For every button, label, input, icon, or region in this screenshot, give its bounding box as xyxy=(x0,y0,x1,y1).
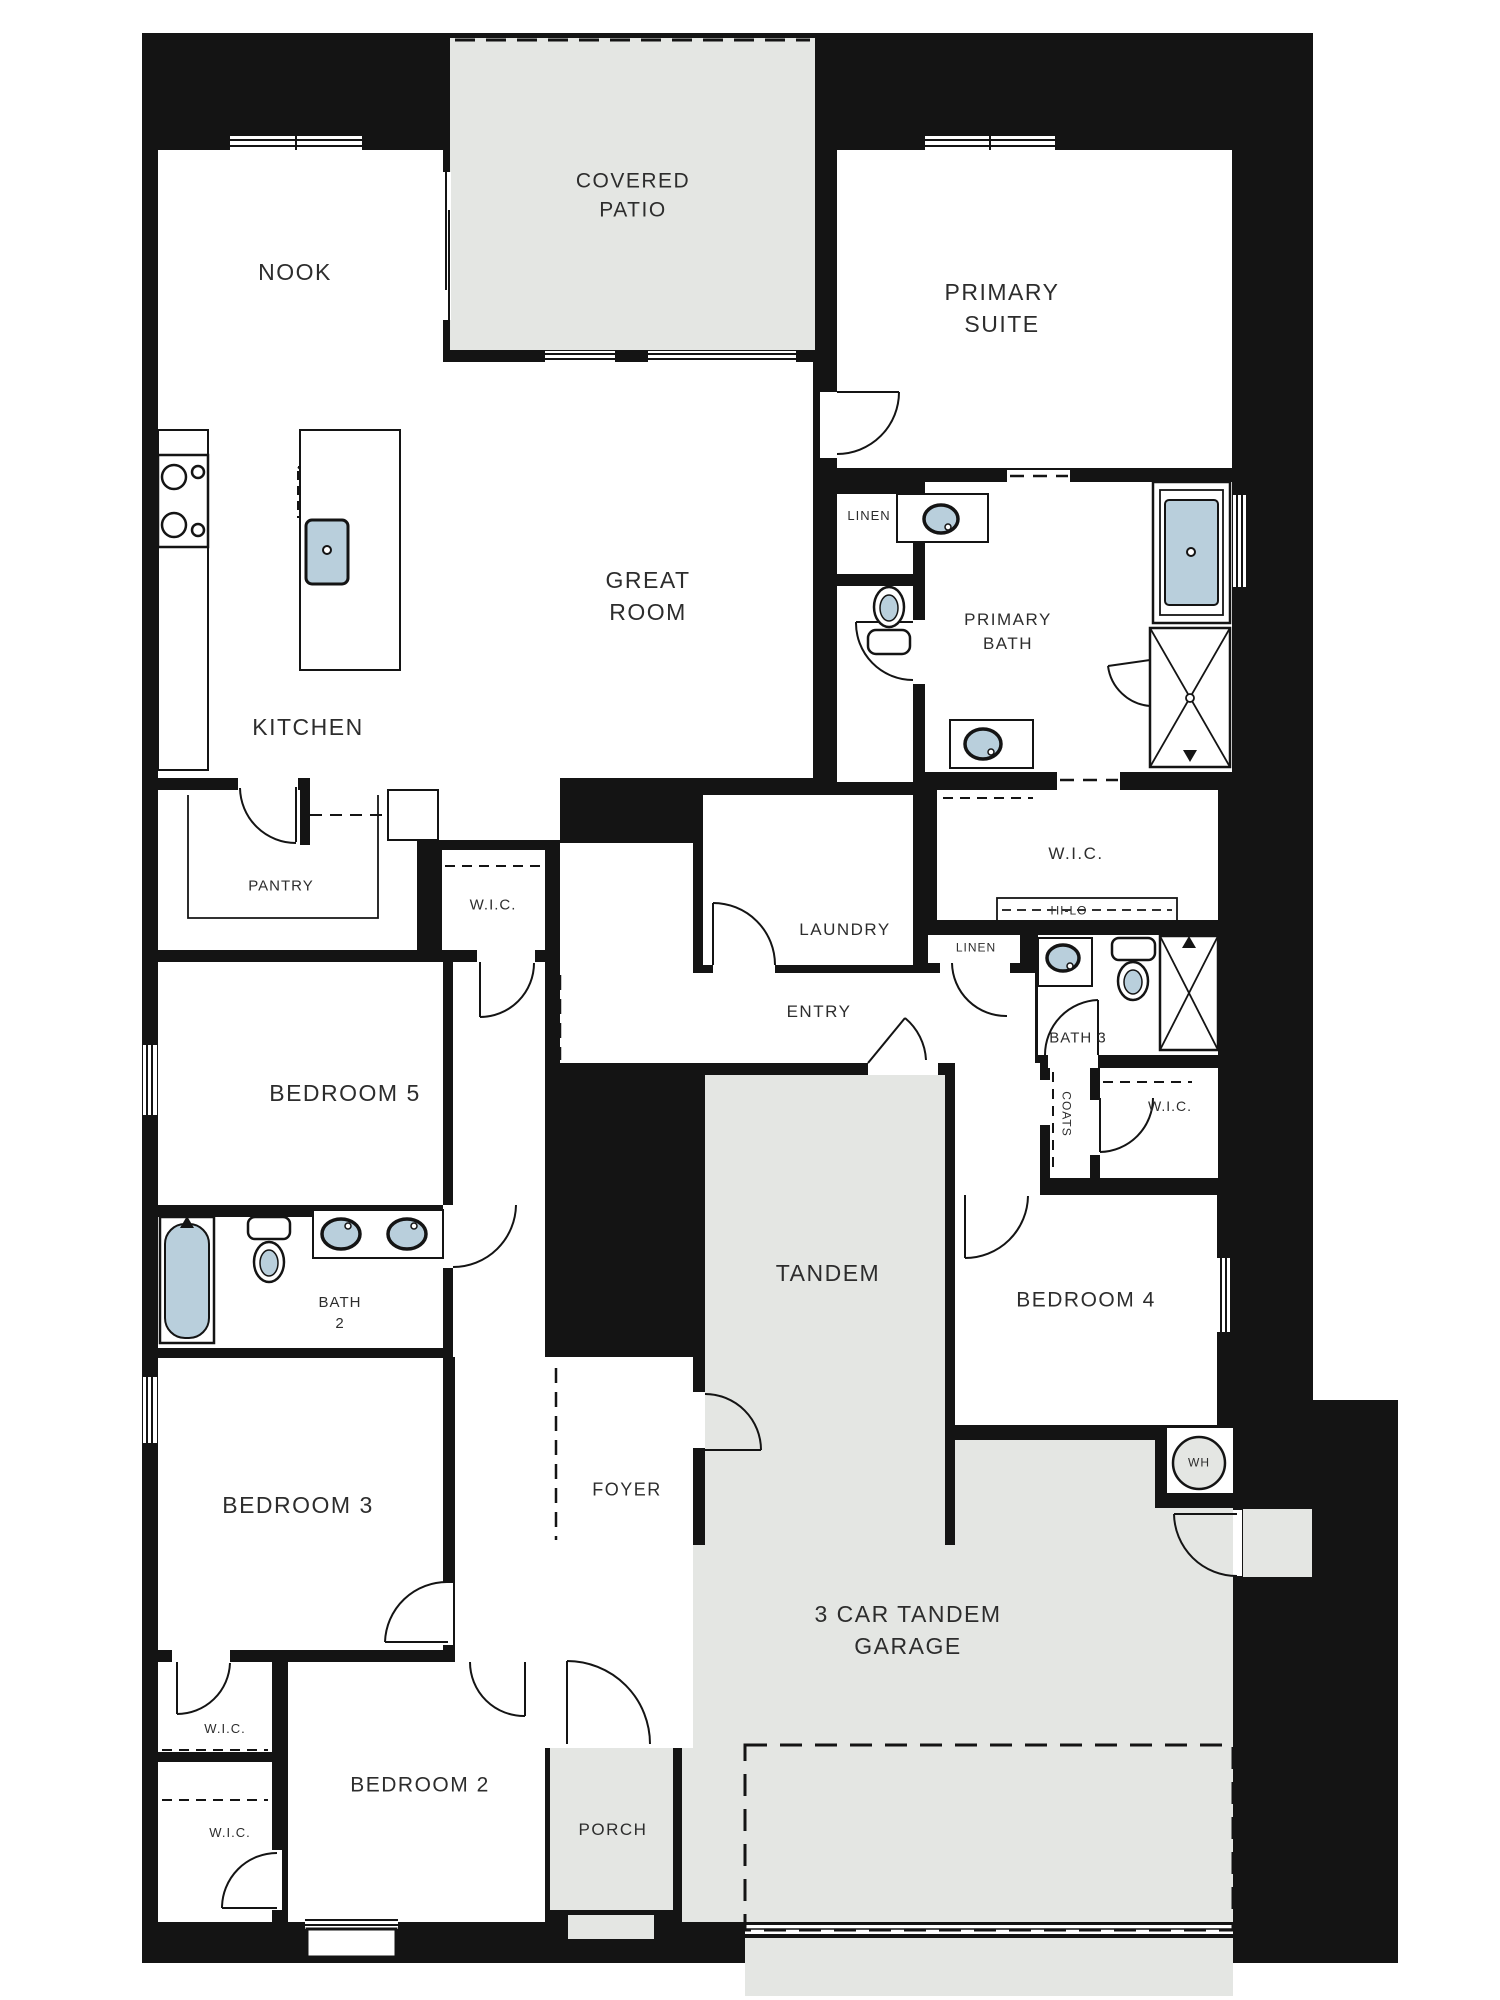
room-label-hi-lo: HI-LO xyxy=(1050,903,1087,920)
room-label-wic-2b: W.I.C. xyxy=(209,1824,250,1842)
room-label-great-room-line1: GREAT xyxy=(605,564,690,596)
sliding-door-nook-patio xyxy=(443,172,451,320)
room-label-primary-bath: PRIMARY BATH xyxy=(964,608,1052,656)
room-label-covered-patio-line1: COVERED xyxy=(576,167,690,196)
walk-in-shower-icon xyxy=(1150,628,1230,767)
room-label-garage-line1: 3 CAR TANDEM xyxy=(814,1598,1001,1630)
bath2-double-sink-icon xyxy=(313,1210,443,1258)
window-bedroom5-left xyxy=(143,1045,157,1115)
room-label-coats: COATS xyxy=(1058,1091,1075,1136)
primary-sink-icon xyxy=(897,494,988,542)
floor-plan-page: COVERED PATIO NOOK PRIMARY SUITE GREAT R… xyxy=(0,0,1500,2000)
room-label-garage-line2: GARAGE xyxy=(814,1630,1001,1662)
room-label-primary-suite: PRIMARY SUITE xyxy=(945,276,1060,340)
floor-plan-drawing xyxy=(0,0,1500,2000)
room-label-primary-bath-line1: PRIMARY xyxy=(964,608,1052,632)
room-label-porch: PORCH xyxy=(579,1818,648,1842)
label-water-heater: WH xyxy=(1188,1455,1210,1472)
refrigerator-icon xyxy=(388,790,438,840)
window-bedroom3-left xyxy=(143,1377,157,1443)
window-bath-right xyxy=(1233,495,1246,587)
room-label-primary-suite-line2: SUITE xyxy=(945,308,1060,340)
cooktop-icon xyxy=(158,455,208,547)
room-label-bedroom-2: BEDROOM 2 xyxy=(350,1770,490,1799)
room-label-nook: NOOK xyxy=(258,256,332,288)
room-label-bath-2: BATH 2 xyxy=(319,1292,362,1334)
room-label-great-room-line2: ROOM xyxy=(605,596,690,628)
porch-step xyxy=(567,1914,655,1940)
window-bedroom4-right xyxy=(1217,1258,1230,1332)
room-label-garage: 3 CAR TANDEM GARAGE xyxy=(814,1598,1001,1662)
driveway-apron xyxy=(745,1938,1233,1996)
room-label-laundry: LAUNDRY xyxy=(799,918,890,942)
room-label-linen-lower: LINEN xyxy=(956,940,996,957)
room-label-bath-2-line1: BATH xyxy=(319,1292,362,1313)
room-label-entry: ENTRY xyxy=(787,1000,852,1024)
room-label-pantry: PANTRY xyxy=(248,876,313,897)
primary-vanity-sink-icon xyxy=(950,720,1033,768)
room-label-wic-hall: W.I.C. xyxy=(470,895,517,916)
room-label-covered-patio: COVERED PATIO xyxy=(576,167,690,226)
bath2-tub-icon xyxy=(160,1216,214,1343)
room-label-bedroom-4: BEDROOM 4 xyxy=(1016,1285,1156,1314)
kitchen-sink-icon xyxy=(306,520,348,584)
room-label-foyer: FOYER xyxy=(592,1477,662,1502)
bath3-sink-icon xyxy=(1038,938,1092,986)
room-label-kitchen: KITCHEN xyxy=(252,711,363,743)
room-label-linen-upper: LINEN xyxy=(847,507,890,525)
room-label-great-room: GREAT ROOM xyxy=(605,564,690,628)
room-label-tandem: TANDEM xyxy=(776,1257,880,1289)
room-label-wic-primary: W.I.C. xyxy=(1048,842,1103,866)
room-label-wic-3: W.I.C. xyxy=(1148,1097,1192,1117)
room-label-bath-2-line2: 2 xyxy=(319,1313,362,1334)
side-stoop xyxy=(1242,1508,1313,1578)
room-label-bedroom-3: BEDROOM 3 xyxy=(222,1489,374,1521)
room-label-covered-patio-line2: PATIO xyxy=(576,196,690,225)
bathtub-icon xyxy=(1153,482,1230,623)
room-label-wic-2a: W.I.C. xyxy=(204,1720,245,1738)
room-label-primary-bath-line2: BATH xyxy=(964,632,1052,656)
bath3-shower-icon xyxy=(1160,936,1218,1050)
window-suite-top xyxy=(925,136,1055,150)
room-label-primary-suite-line1: PRIMARY xyxy=(945,276,1060,308)
room-label-bedroom-5: BEDROOM 5 xyxy=(269,1077,421,1109)
window-great-room-patio xyxy=(545,351,796,362)
window-bedroom2-bottom xyxy=(305,1917,398,1957)
window-nook-top xyxy=(230,136,362,150)
room-label-bath-3: BATH 3 xyxy=(1049,1028,1106,1049)
